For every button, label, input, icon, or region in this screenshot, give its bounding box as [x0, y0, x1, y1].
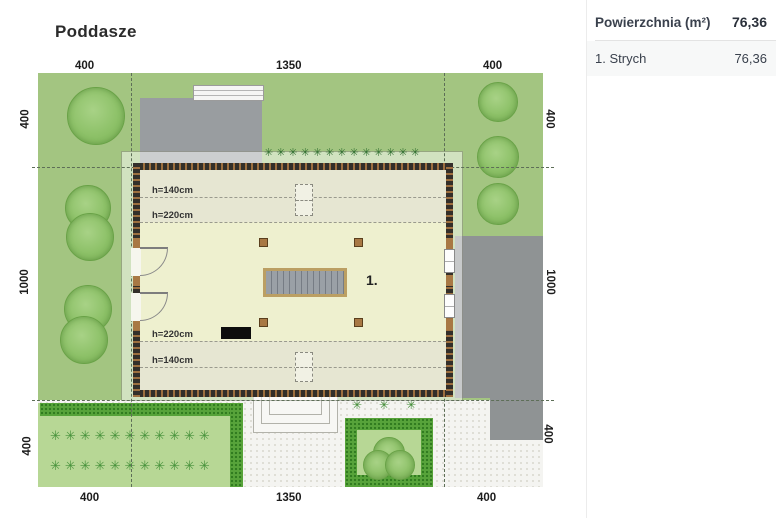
dimension-bottom-right: 400 — [477, 492, 496, 504]
tree-icon — [60, 316, 108, 364]
dimension-top-center: 1350 — [276, 60, 302, 72]
height-line-140-bottom — [140, 367, 446, 368]
chimney — [295, 352, 313, 382]
dimension-bottom-center: 1350 — [276, 492, 302, 504]
tree-icon — [477, 183, 519, 225]
area-panel-header: Powierzchnia (m²) 76,36 — [587, 0, 776, 40]
site-plan: ✳✳✳✳✳✳✳✳✳✳✳ ✳✳✳✳✳✳✳✳✳✳✳ ✳✳✳ ✳✳✳✳✳✳✳✳✳✳✳✳… — [0, 0, 586, 518]
dimension-left-bottom: 400 — [22, 436, 34, 455]
gray-paving-right — [455, 236, 543, 398]
stairs — [263, 268, 347, 297]
room-area-value: 76,36 — [734, 51, 767, 66]
height-line-220-top — [140, 222, 446, 223]
height-label: h=140cm — [152, 185, 193, 196]
setback-line-vertical-left — [131, 73, 132, 487]
timber-post — [259, 238, 268, 247]
area-header-value: 76,36 — [732, 14, 767, 30]
area-panel: Powierzchnia (m²) 76,36 1. Strych 76,36 — [586, 0, 776, 518]
window — [444, 249, 455, 273]
page: Poddasze ✳✳✳✳✳✳✳✳✳✳✳ ✳✳✳✳✳✳✳✳✳✳✳ — [0, 0, 776, 518]
dimension-top-left: 400 — [75, 60, 94, 72]
hedge-strip-right — [230, 403, 243, 487]
tree-icon — [67, 87, 125, 145]
dimension-top-right: 400 — [483, 60, 502, 72]
grass-row: ✳✳✳✳✳✳✳✳✳✳✳✳✳ — [264, 146, 423, 159]
wall-bottom — [133, 390, 453, 397]
height-line-140-top — [140, 197, 446, 198]
dimension-right-bottom: 400 — [542, 424, 554, 443]
room-name: 1. Strych — [595, 51, 646, 66]
height-label: h=140cm — [152, 355, 193, 366]
timber-post — [354, 318, 363, 327]
area-header-label: Powierzchnia (m²) — [595, 15, 711, 30]
height-label: h=220cm — [152, 329, 193, 340]
room-list-item[interactable]: 1. Strych 76,36 — [587, 41, 776, 76]
dimension-right-top: 400 — [544, 109, 556, 128]
stove — [221, 327, 251, 339]
tree-icon — [477, 136, 519, 178]
wall-post — [446, 275, 453, 286]
height-line-220-bottom — [140, 341, 446, 342]
dimension-right-middle: 1000 — [544, 269, 556, 295]
dimension-left-middle: 1000 — [19, 269, 31, 295]
chimney — [295, 184, 313, 216]
height-label: h=220cm — [152, 210, 193, 221]
timber-post — [354, 238, 363, 247]
setback-line-horizontal-bottom — [32, 400, 554, 401]
dimension-left-top: 400 — [20, 109, 32, 128]
tree-icon — [478, 82, 518, 122]
tree-icon — [385, 450, 415, 480]
wall-post — [446, 319, 453, 330]
wall-post — [133, 275, 140, 286]
hedge-strip-top — [40, 403, 243, 416]
wall-top — [133, 163, 453, 170]
timber-post — [259, 318, 268, 327]
gray-paving-bottom-right — [490, 398, 543, 440]
tree-icon — [66, 213, 114, 261]
wall-post — [446, 238, 453, 249]
dimension-bottom-left: 400 — [80, 492, 99, 504]
room-number: 1. — [366, 272, 378, 288]
window — [444, 294, 455, 318]
dormer — [193, 85, 264, 101]
